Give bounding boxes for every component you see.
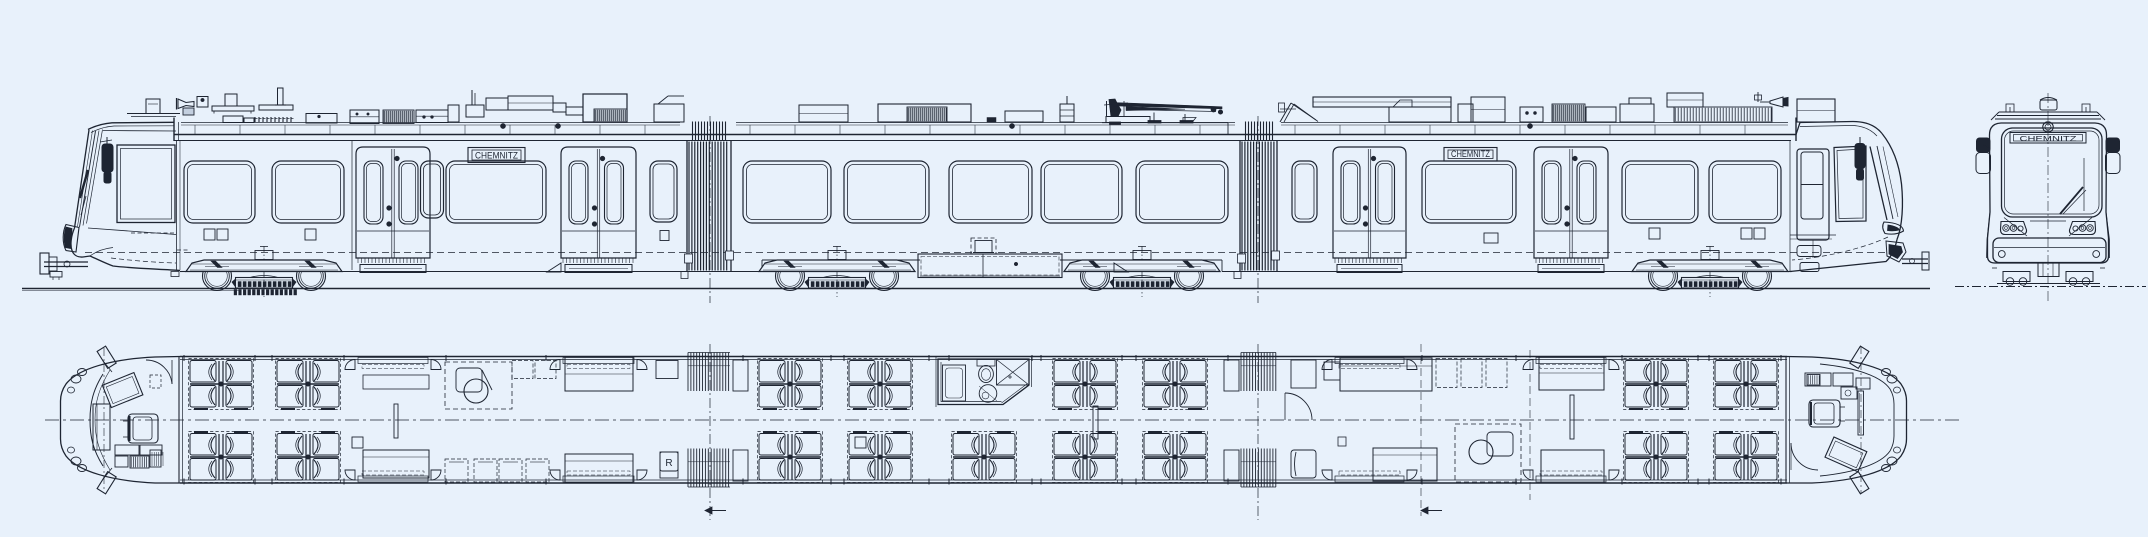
svg-text:R: R [665, 458, 672, 469]
svg-text:CHEMNITZ: CHEMNITZ [475, 151, 518, 161]
svg-text:CHEMNITZ: CHEMNITZ [1451, 149, 1490, 159]
svg-text:CHEMNITZ: CHEMNITZ [2020, 134, 2078, 143]
